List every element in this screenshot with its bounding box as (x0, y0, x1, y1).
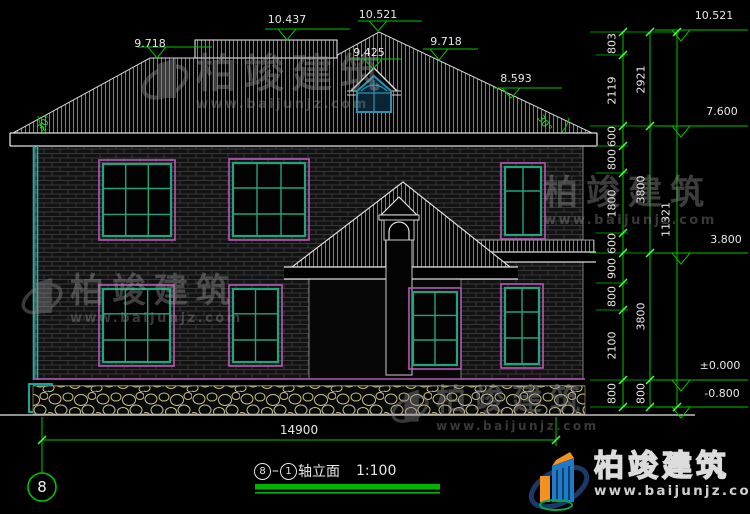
cad-elevation-screenshot: 柏竣建筑 www.baijunjz.com 柏竣建筑 www.baijunjz.… (0, 0, 750, 514)
watermark: 柏竣建筑 www.baijunjz.com (544, 176, 717, 228)
title-axis-from: 8 (254, 463, 271, 480)
watermark-logo-icon (390, 386, 430, 430)
dim-bottom-width: 14900 (262, 424, 336, 437)
elevation-label-right-ground: -0.800 (690, 387, 750, 400)
dim-right-mid: 3800 (635, 168, 648, 212)
watermark: 柏竣建筑 www.baijunjz.com (140, 54, 388, 112)
title-name: 轴立面 (298, 461, 340, 481)
elevation-label-slope-break: 9.718 (416, 35, 476, 48)
watermark-url: www.baijunjz.com (70, 311, 243, 326)
elevation-label-right-floor2: 3.800 (696, 233, 750, 246)
dim-right-mid: 800 (635, 372, 648, 416)
watermark-text: 柏竣建筑 (436, 386, 599, 416)
site-logo: 柏竣建筑 www.baijunjz.com (526, 450, 750, 499)
watermark-url: www.baijunjz.com (196, 97, 388, 112)
axis-bubble-label: 8 (33, 478, 51, 496)
watermark-url: www.baijunjz.com (544, 213, 717, 228)
elevation-label-roof-low: 8.593 (486, 72, 546, 85)
dim-right-total: 11321 (660, 198, 673, 242)
dim-right: 2119 (606, 69, 619, 113)
drawing-title: 8–1轴立面1:100 (253, 461, 396, 481)
dim-right: 803 (606, 22, 619, 66)
watermark-logo-icon (20, 274, 64, 322)
watermark-text: 柏竣建筑 (196, 54, 388, 94)
watermark: 柏竣建筑 www.baijunjz.com (390, 386, 599, 433)
logo-text: 柏竣建筑 (594, 450, 750, 483)
dim-right: 800 (606, 372, 619, 416)
title-underline (255, 484, 440, 494)
dim-right: 800 (606, 275, 619, 319)
watermark: 柏竣建筑 www.baijunjz.com (20, 274, 243, 326)
watermark-url: www.baijunjz.com (436, 419, 599, 433)
elevation-label-left-eave: 9.718 (120, 37, 180, 50)
dim-right-mid: 3800 (635, 295, 648, 339)
elevation-label-peak: 10.521 (348, 8, 408, 21)
elevation-label-dormer: 9.425 (339, 46, 399, 59)
title-scale: 1:100 (356, 463, 396, 479)
dim-right: 2100 (606, 324, 619, 368)
dim-right: 800 (606, 138, 619, 182)
elevation-label-right-zero: ±0.000 (688, 359, 750, 372)
watermark-text: 柏竣建筑 (544, 176, 717, 210)
logo-url: www.baijunjz.com (594, 483, 750, 499)
dim-right-mid: 2921 (635, 58, 648, 102)
title-axis-to: 1 (280, 463, 297, 480)
elevation-label-right-eave: 7.600 (692, 105, 750, 118)
title-dash: – (272, 463, 279, 479)
elevation-label-right-top: 10.521 (684, 9, 744, 22)
dim-right: 1800 (606, 182, 619, 226)
elevation-label-ridge: 10.437 (257, 13, 317, 26)
watermark-logo-icon (140, 54, 190, 108)
watermark-text: 柏竣建筑 (70, 274, 243, 308)
